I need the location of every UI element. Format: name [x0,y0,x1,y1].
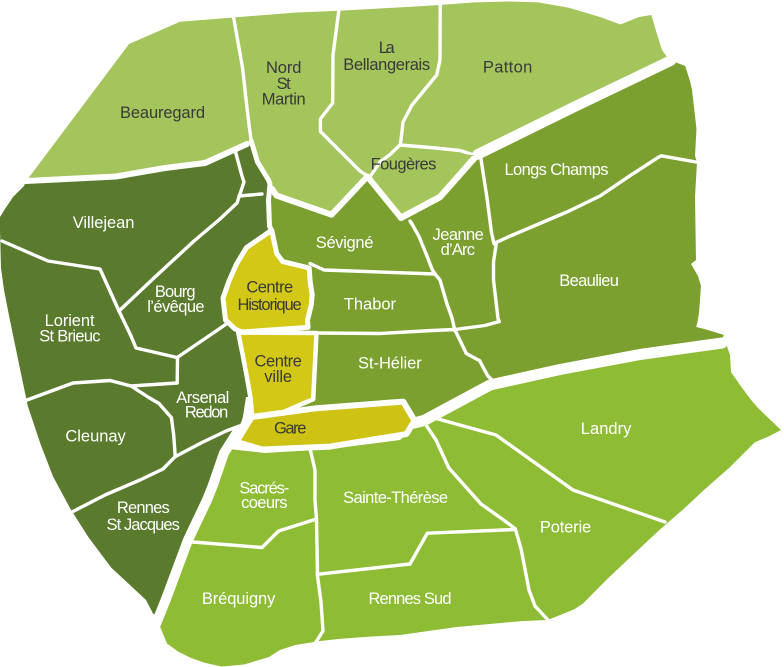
svg-text:d’Arc: d’Arc [441,241,475,259]
svg-text:Landry: Landry [581,420,632,438]
svg-text:Beaulieu: Beaulieu [559,272,619,290]
svg-text:Sévigné: Sévigné [316,234,374,252]
svg-text:Martin: Martin [262,91,306,109]
svg-text:Beauregard: Beauregard [120,104,205,122]
svg-text:Sainte-Thérèse: Sainte-Thérèse [343,489,448,507]
svg-text:Poterie: Poterie [540,519,591,537]
svg-text:Redon: Redon [185,404,228,422]
svg-text:Bellangerais: Bellangerais [343,56,430,74]
svg-text:St Brieuc: St Brieuc [39,328,100,346]
svg-text:Rennes: Rennes [117,499,170,517]
svg-text:ville: ville [264,368,292,386]
svg-text:Longs Champs: Longs Champs [505,161,609,179]
svg-text:Villejean: Villejean [73,214,135,232]
svg-text:l’évêque: l’évêque [147,298,204,316]
svg-text:Historique: Historique [238,296,302,314]
svg-text:Gare: Gare [274,420,306,438]
svg-text:La: La [379,39,396,57]
svg-text:St-Hélier: St-Hélier [358,354,422,372]
svg-text:Rennes Sud: Rennes Sud [369,590,452,608]
svg-text:Thabor: Thabor [344,296,397,314]
svg-text:St Jacques: St Jacques [107,516,180,534]
svg-text:coeurs: coeurs [241,494,287,512]
svg-text:Patton: Patton [483,58,532,76]
svg-text:Cleunay: Cleunay [65,428,126,446]
svg-text:Fougères: Fougères [371,155,437,173]
svg-text:Centre: Centre [246,278,293,296]
svg-text:Bréquigny: Bréquigny [202,590,276,608]
